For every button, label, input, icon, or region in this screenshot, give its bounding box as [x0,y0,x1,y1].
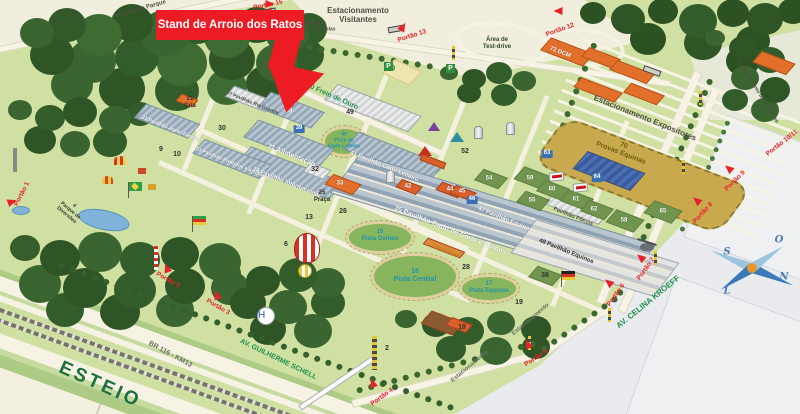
venue-label-18: 18 [458,324,466,332]
forest-northwest [20,18,54,48]
compass-letter-o: O [775,235,784,246]
tower-striped [154,246,158,270]
helicopter-icon [640,243,654,251]
flag-rs [193,216,206,225]
annotation-callout: Stand de Arroio dos Ratos [156,10,304,40]
parking-sign-2: P [446,64,455,73]
venue-label-46: 46 [467,196,478,204]
gate-pole-2 [682,160,685,174]
gate-label-port-o-3: Portão 3 [205,297,231,316]
forest-south-circles [395,310,417,328]
gate-arrow-icon-port-o-3 [210,286,222,301]
venue-label-2: 2 [385,345,389,353]
venue-label-10: 10 [173,151,181,159]
small-sign-2 [573,182,589,193]
pond [12,206,30,215]
forest-central [215,262,241,284]
compass-letter-s: S [723,247,730,258]
compass-rose [702,218,800,318]
venue-label-13: 13 [305,214,313,222]
venue-label-65: 65 [660,209,667,216]
venue-label-36: 36 [541,272,549,280]
area-label-rea-de-test-drive: Área de Test-drive [483,37,511,51]
expo-park-map: JLQRSFGMNOABHITCD [0,0,800,414]
venue-label-26: 26 [339,208,347,216]
gate-pole-1 [699,91,702,105]
venue-label-9: 9 [159,146,163,154]
venue-label-58: 58 [621,218,628,225]
venue-label-55: 55 [529,198,536,205]
flag-germany [562,271,575,280]
trees-truck-parking [705,30,725,46]
silo-2 [474,126,483,139]
venue-label-63: 63 [542,150,553,158]
venue-label-15: 15 Pista Ovinos [362,229,398,243]
compass-letter-l: L [723,286,730,297]
venue-label-6: 6 [284,241,288,249]
venue-label-32: 32 [311,166,319,174]
area-label-estacionamento: Estacionamento [511,302,551,337]
venue-label-21: 21 Cria [184,96,196,110]
gate-arrow-icon-port-o-2 [160,259,172,274]
venue-label-28: 28 [462,264,470,272]
venue-label-17: 17 Pista Equinos [469,281,509,295]
venue-label-64: 64 [592,174,603,182]
balloon-small [298,264,312,278]
venue-label-39: 39 [294,125,305,133]
forest-west [8,100,32,120]
silo-3 [506,122,515,135]
bridge-tower [372,336,377,370]
ride-tent-1 [114,156,126,165]
venue-label-42: 42 [405,184,412,191]
venue-label-40: 40 Pista de Gado Leiteiro [328,132,360,149]
compass-letter-n: N [779,272,788,283]
small-sign-1 [549,171,565,182]
venue-label-4: 4 Parque de Diversões [55,197,85,226]
gate-pole-4 [608,308,611,322]
lake [76,205,131,235]
venue-label-44: 44 [447,187,454,194]
venue-label-54: 54 [486,176,493,183]
ride-tent-2 [102,176,113,184]
venue-label-16: 16 Pista Central [394,268,437,284]
gate-arrow-icon-port-o-12 [550,7,563,15]
hot-air-balloon [294,233,320,263]
venue-label-60: 60 [549,187,556,194]
gate-label-port-o-2: Portão 2 [155,271,181,290]
tent-purple [428,122,440,131]
compass-center [747,263,757,273]
gate-pole-6 [452,46,455,60]
area-label-estacionamento-visitantes: Estacionamento Visitantes [327,6,389,24]
venue-label-62: 62 [591,207,598,214]
venue-label-19: 19 [515,299,523,307]
ride-box-1 [138,168,146,174]
flag-brazil [129,182,142,191]
ride-box-2 [148,184,156,190]
tent-teal [450,132,464,142]
forest-northeast-pines [580,2,606,24]
venue-label-45: 45 [459,189,466,196]
tower-observation [13,148,17,172]
forest-southwest [10,235,40,261]
area-label-h: H [257,307,275,325]
venue-label-52: 52 [461,148,469,156]
venue-label-61: 61 [573,197,580,204]
venue-label-33: 33 [337,181,344,188]
venue-label-59: 59 [527,176,534,183]
venue-label-30: 30 [218,125,226,133]
venue-label-25: 25 Praça [314,190,330,204]
parking-sign-1: P [384,62,393,71]
